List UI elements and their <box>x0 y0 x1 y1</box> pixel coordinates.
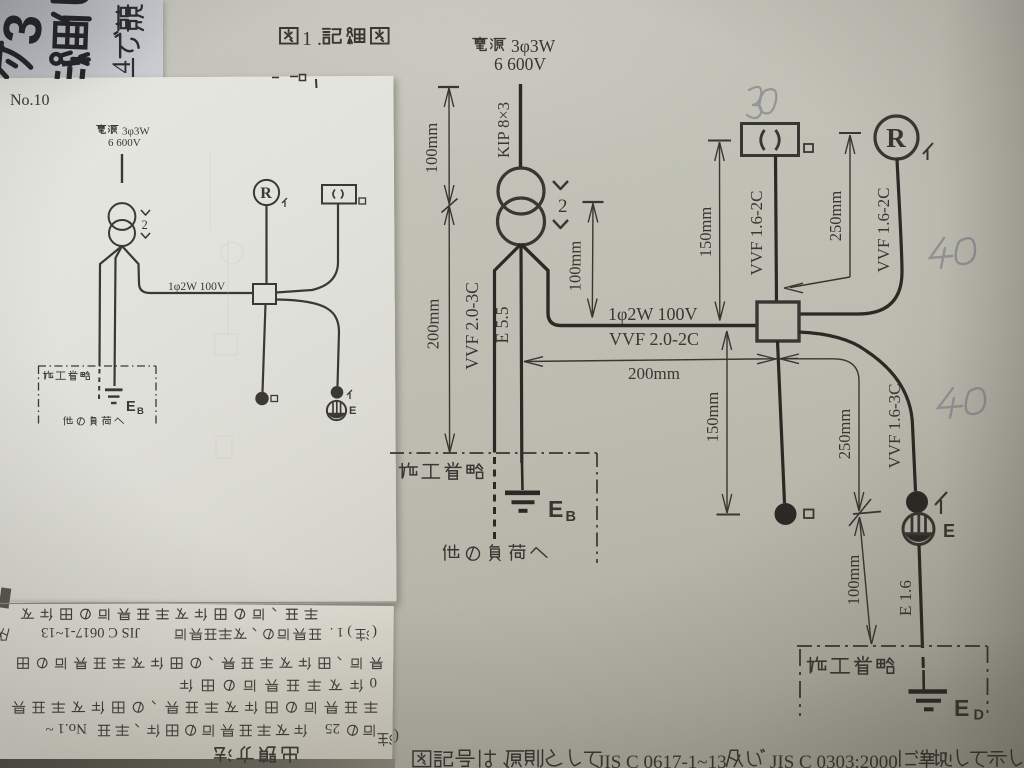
svg-text:R: R <box>886 123 906 153</box>
svg-text:150mm: 150mm <box>703 392 722 443</box>
svg-text:B: B <box>566 509 576 525</box>
svg-text:VVF 1.6-2C: VVF 1.6-2C <box>874 187 893 272</box>
svg-text:E: E <box>349 405 356 417</box>
svg-text:KIP 8×3: KIP 8×3 <box>494 102 513 158</box>
svg-text:2: 2 <box>558 196 568 217</box>
svg-text:E: E <box>954 695 969 721</box>
svg-text:100mm: 100mm <box>844 555 863 606</box>
svg-text:VVF 1.6-2C: VVF 1.6-2C <box>747 190 766 275</box>
svg-text:3φ3W: 3φ3W <box>122 126 150 138</box>
svg-text:E 1.6: E 1.6 <box>896 580 915 616</box>
svg-text:VVF 1.6-3C: VVF 1.6-3C <box>885 383 904 468</box>
svg-text:R: R <box>260 185 272 202</box>
svg-text:E 5.5: E 5.5 <box>492 306 512 343</box>
svg-text:4: 4 <box>107 61 136 74</box>
svg-text:) 1 .: ) 1 . <box>330 624 352 639</box>
svg-text:2: 2 <box>142 218 148 232</box>
svg-text:No.10: No.10 <box>10 92 50 109</box>
svg-text:200mm: 200mm <box>424 299 443 350</box>
svg-text:VVF 2.0-2C: VVF 2.0-2C <box>609 329 699 349</box>
svg-text:JIS C 0617-1~13: JIS C 0617-1~13 <box>41 624 140 640</box>
svg-text:JIS C 0303:2000: JIS C 0303:2000 <box>770 752 898 768</box>
svg-text:E: E <box>548 496 563 522</box>
svg-text:(: ( <box>372 624 377 640</box>
svg-text:0: 0 <box>370 674 378 690</box>
svg-text:1φ2W 100V: 1φ2W 100V <box>168 281 226 293</box>
svg-text:1 .: 1 . <box>302 28 322 50</box>
svg-text:3: 3 <box>0 10 55 48</box>
svg-text:E: E <box>126 399 136 415</box>
svg-text:250mm: 250mm <box>826 191 845 242</box>
svg-text:250mm: 250mm <box>835 409 854 460</box>
svg-text:D: D <box>974 708 984 724</box>
svg-text:JIS C 0617-1~13: JIS C 0617-1~13 <box>597 752 727 768</box>
svg-text:100mm: 100mm <box>422 123 441 174</box>
svg-text:200mm: 200mm <box>628 364 680 383</box>
svg-text:E: E <box>943 521 955 541</box>
svg-text:100mm: 100mm <box>566 241 585 292</box>
svg-text:3φ3W: 3φ3W <box>511 36 556 56</box>
svg-text:6 600V: 6 600V <box>494 54 546 74</box>
svg-text:VVF 2.0-3C: VVF 2.0-3C <box>462 282 482 370</box>
svg-text:(: ( <box>394 728 399 745</box>
svg-text:150mm: 150mm <box>696 207 715 258</box>
svg-text:B: B <box>137 406 144 417</box>
svg-text:25: 25 <box>325 720 340 736</box>
svg-text:1φ2W 100V: 1φ2W 100V <box>608 304 698 324</box>
svg-text:6 600V: 6 600V <box>108 137 141 149</box>
svg-text:No.1 ~: No.1 ~ <box>46 720 87 736</box>
